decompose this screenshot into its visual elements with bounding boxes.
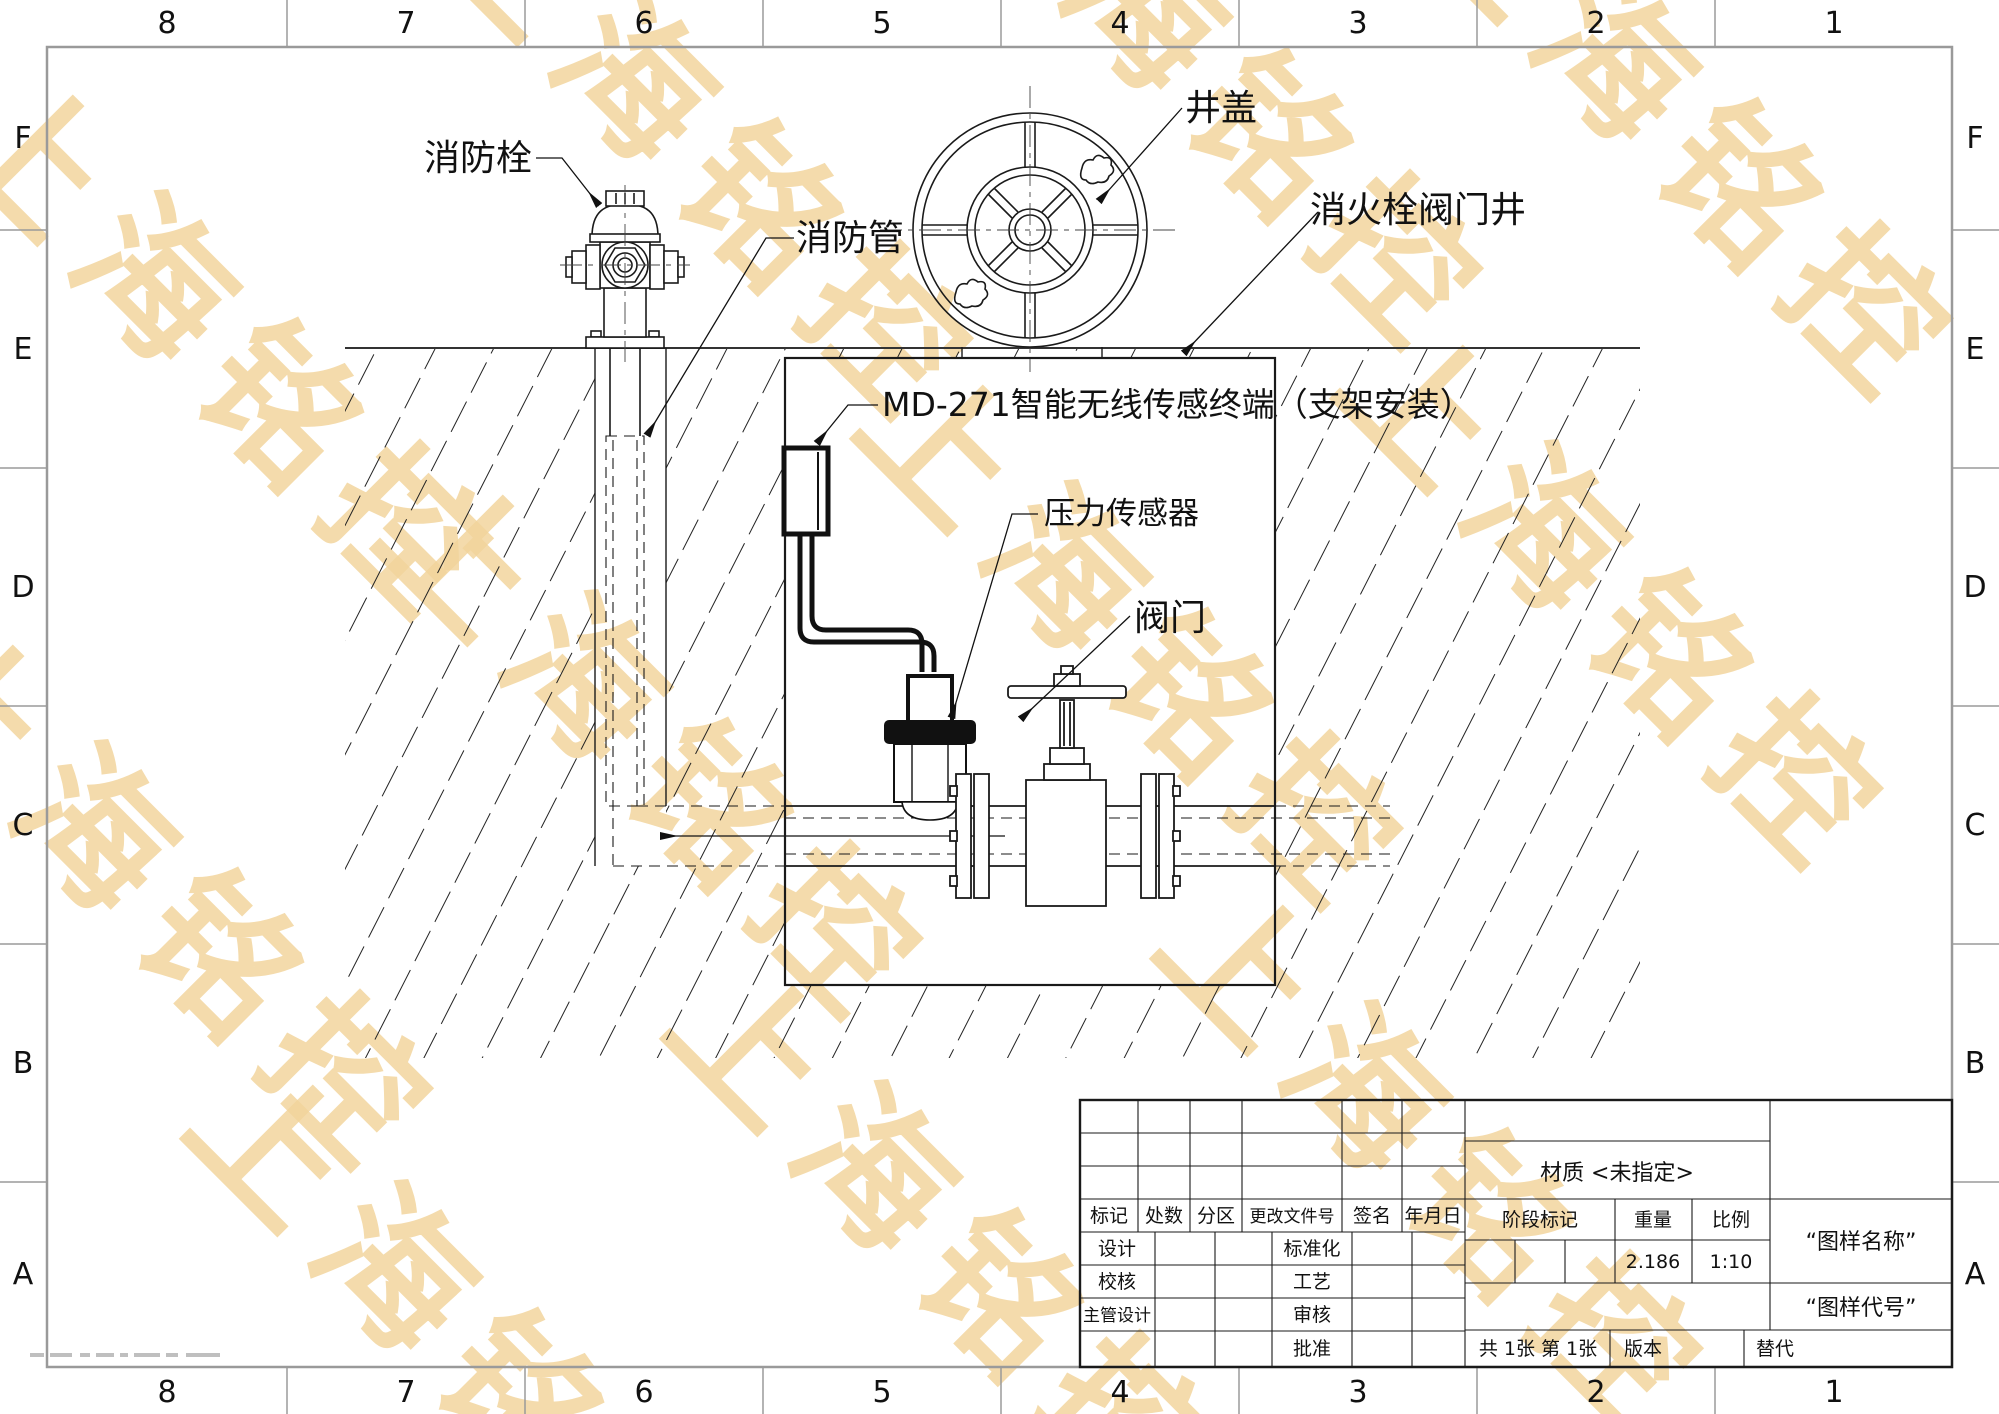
grid-col-label: 2 [1586,1375,1605,1410]
grid-row-label: E [14,332,33,367]
grid-col-label: 1 [1824,6,1843,41]
tb-check: 校核 [1098,1271,1136,1293]
grid-row-label: A [13,1257,34,1292]
grid-col-label: 7 [396,6,415,41]
grid-row-label: B [13,1046,34,1081]
tb-rev-header: 分区 [1197,1205,1235,1227]
grid-col-label: 6 [634,1375,653,1410]
tb-drawing-name: “图样名称” [1806,1230,1917,1255]
tb-rev-header: 年月日 [1404,1205,1461,1227]
footer-smudge [30,1353,220,1357]
grid-row-label: D [11,570,34,605]
grid-col-label: 4 [1110,6,1129,41]
label-fire-hydrant: 消防栓 [424,138,532,179]
grid-col-label: 8 [157,1375,176,1410]
tb-scale: 比例 [1712,1209,1750,1231]
tb-approve: 批准 [1293,1338,1331,1360]
tb-material: 材质 <未指定> [1540,1161,1694,1186]
grid-row-label: C [13,808,34,843]
grid-row-label: F [14,121,31,156]
grid-col-label: 6 [634,6,653,41]
tb-sheets: 共 1张 第 1张 [1479,1338,1597,1360]
tb-rev-header: 签名 [1353,1205,1391,1227]
grid-row-label: A [1965,1257,1986,1292]
tb-scale-value: 1:10 [1710,1251,1753,1273]
tb-review: 审核 [1293,1304,1331,1326]
grid-row-label: B [1965,1046,1986,1081]
label-pressure-sensor: 压力传感器 [1044,496,1199,532]
label-well-cover: 井盖 [1185,88,1257,129]
tb-replace: 替代 [1756,1338,1794,1360]
tb-drawing-code: “图样代号” [1806,1296,1917,1321]
tb-weight-value: 2.186 [1626,1251,1680,1273]
grid-col-label: 4 [1110,1375,1129,1410]
label-fire-pipe: 消防管 [796,218,904,259]
label-sensor-terminal: MD-271智能无线传感终端（支架安装） [882,385,1473,424]
tb-rev-header: 更改文件号 [1250,1207,1335,1227]
grid-row-label: C [1965,808,1986,843]
label-hydrant-valve-well: 消火栓阀门井 [1310,190,1526,231]
tb-weight: 重量 [1634,1209,1672,1231]
grid-col-label: 3 [1348,1375,1367,1410]
label-valve: 阀门 [1134,598,1206,639]
grid-col-label: 7 [396,1375,415,1410]
tb-design: 设计 [1098,1238,1136,1260]
tb-rev-header: 处数 [1145,1205,1183,1227]
grid-col-label: 3 [1348,6,1367,41]
tb-process: 工艺 [1293,1271,1331,1293]
tb-stage-mark: 阶段标记 [1502,1209,1578,1231]
grid-col-label: 5 [872,1375,891,1410]
grid-row-label: D [1963,570,1986,605]
watermark-layer: 上海铭控 上海铭控 上海铭控 上海铭控 上海铭控 上海铭控 上海铭控 上海铭控 … [0,0,1995,1414]
grid-col-label: 1 [1824,1375,1843,1410]
grid-row-label: E [1966,332,1985,367]
grid-row-label: F [1966,121,1983,156]
sensor-cable [812,536,922,672]
cover-blob [1081,155,1114,183]
tb-rev-header: 标记 [1090,1205,1128,1227]
sensor-cable [800,536,934,672]
cad-drawing-canvas: 上海铭控 上海铭控 上海铭控 上海铭控 上海铭控 上海铭控 上海铭控 上海铭控 … [0,0,1999,1414]
tb-version: 版本 [1624,1338,1662,1360]
tb-chief-design: 主管设计 [1083,1306,1151,1326]
grid-col-label: 8 [157,6,176,41]
tb-standardization: 标准化 [1283,1238,1340,1260]
grid-col-label: 5 [872,6,891,41]
grid-col-label: 2 [1586,6,1605,41]
